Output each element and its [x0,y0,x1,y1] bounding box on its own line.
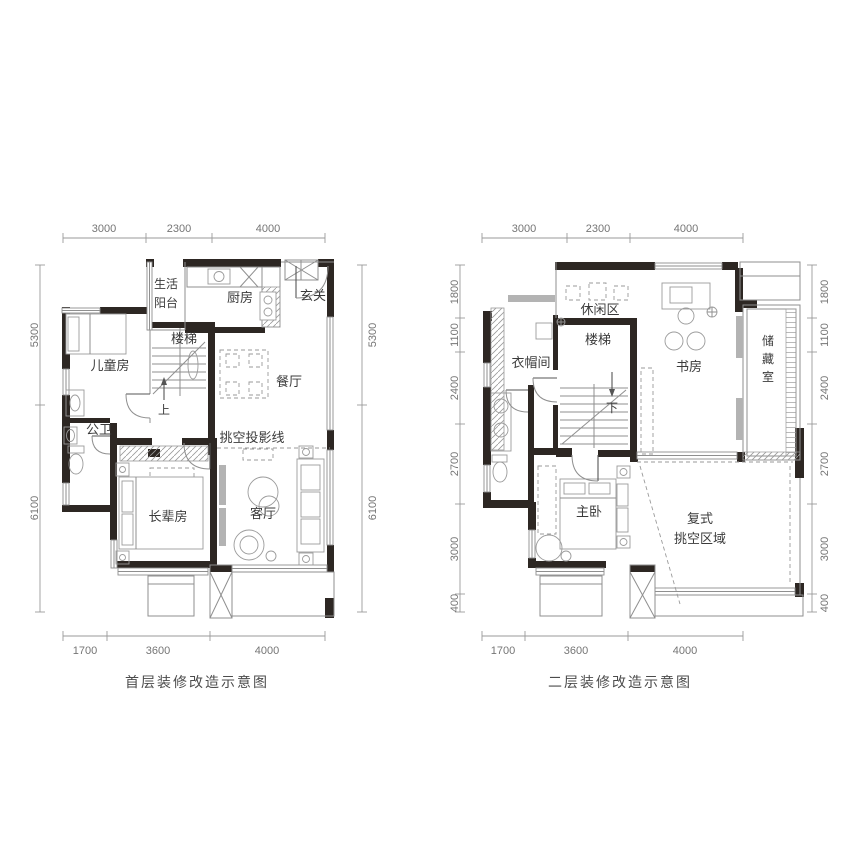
column-x-box [210,565,232,618]
dim-label: 6100 [29,496,41,520]
label-void-1: 复式 [687,511,713,526]
dim-label: 3000 [512,223,536,235]
bed [66,314,126,354]
stool [536,323,552,339]
floor1-walls [62,259,334,618]
sliding-panel [219,508,226,546]
leisure-stools [566,283,628,300]
label-dining: 餐厅 [276,374,302,389]
cloakroom-furniture [536,318,565,339]
dim-label: 3000 [92,223,116,235]
dining-table [220,350,268,398]
label-stairs2: 楼梯 [585,332,611,347]
floor2-dim-right: 1800 1100 2400 2700 3000 400 [807,265,831,612]
floor1-dim-left: 5300 6100 [29,265,45,612]
sliding-panel [219,465,226,505]
dim-label: 5300 [367,323,379,347]
label-void-projection: 挑空投影线 [219,430,284,445]
dim-label: 5300 [29,323,41,347]
label-kids-room: 儿童房 [90,358,129,373]
dim-label: 1800 [819,280,831,304]
dim-label: 4000 [255,645,279,657]
dim-label: 3000 [819,537,831,561]
bath-door-arc [92,436,110,454]
label-leisure: 休闲区 [580,302,619,317]
label-elder-room: 长辈房 [148,509,187,524]
armchair [234,530,264,560]
label-void-2: 挑空区域 [674,531,726,546]
column-x-box2 [630,565,655,618]
tv-cabinet [243,449,273,460]
dim-label: 2700 [449,452,461,476]
label-kitchen: 厨房 [227,290,253,305]
dim-label: 2400 [449,376,461,400]
living-balcony [232,572,334,616]
toilet [69,454,83,474]
storage-window [736,398,743,440]
dim-label: 4000 [673,645,697,657]
toilet-tank [492,455,507,462]
dim-label: 1100 [449,323,461,347]
label-study: 书房 [676,359,702,374]
closet [538,466,556,534]
master-bay-window [540,576,602,616]
dim-label: 400 [819,594,831,612]
floorplan-canvas: 3000 2300 4000 5300 6100 5300 6100 17 [0,0,850,850]
cloakroom-wardrobe [491,308,504,450]
cloak-door-arc [533,378,557,402]
label-living-room: 客厅 [250,506,276,521]
floor1-caption: 首层装修改造示意图 [125,674,269,690]
floor1-plan: 3000 2300 4000 5300 6100 5300 6100 17 [29,223,379,690]
stairs-up-label: 上 [158,403,170,417]
side-table [266,551,276,561]
floor2-plan: 3000 2300 4000 1800 1100 2400 2700 3000 … [449,223,831,690]
label-bathroom: 公卫 [86,422,112,437]
label-storage-3: 室 [762,369,774,384]
kids-door-arc [126,394,150,418]
floor1-dim-right: 5300 6100 [357,265,379,612]
dim-label: 1800 [449,280,461,304]
label-stairs: 楼梯 [171,331,197,346]
floorplan-page: 3000 2300 4000 5300 6100 5300 6100 17 [0,0,850,850]
label-storage-1: 储 [762,333,774,348]
floor2-stairs: 下 [560,372,628,448]
dim-label: 2300 [167,223,191,235]
floor1-dim-top: 3000 2300 4000 [63,223,325,243]
dim-label: 6100 [367,496,379,520]
dim-label: 3000 [449,537,461,561]
nightstand [617,466,630,478]
wardrobe [120,446,208,461]
floor2-dim-bottom: 1700 3600 4000 [482,631,743,657]
dim-label: 2700 [819,452,831,476]
stairs-down-label: 下 [606,401,618,415]
dim-label: 4000 [256,223,280,235]
nightstand [617,536,630,548]
bay-window-elder [148,576,194,616]
storage-window [736,316,743,358]
toilet [493,462,507,482]
floor1-dim-bottom: 1700 3600 4000 [63,631,325,657]
dim-label: 400 [449,594,461,612]
floor2-dim-top: 3000 2300 4000 [482,223,743,243]
bookshelf [641,368,653,454]
label-balcony: 生活 [154,277,178,291]
entry-closet [285,260,318,280]
dim-label: 1700 [73,645,97,657]
floor2-dim-left: 1800 1100 2400 2700 3000 400 [449,265,465,612]
desk-chair [678,308,694,324]
dim-label: 1700 [491,645,515,657]
dining-set [220,350,268,398]
dim-label: 3600 [146,645,170,657]
label-storage-2: 藏 [762,352,774,366]
chair [536,535,562,561]
master-door-arc [572,455,598,481]
dim-label: 3600 [564,645,588,657]
label-cloakroom: 衣帽间 [511,355,550,370]
toilet-tank [68,446,84,453]
dim-label: 1100 [819,323,831,347]
dim-label: 2300 [586,223,610,235]
coffee-table [248,477,278,507]
dim-label: 2400 [819,376,831,400]
void-balcony [655,595,803,616]
label-balcony2: 阳台 [154,295,178,310]
floor2-caption: 二层装修改造示意图 [548,674,692,690]
top-bay [740,262,800,300]
nightstand [116,463,129,476]
label-entry: 玄关 [300,288,326,303]
living-room-furniture [234,446,324,565]
label-master: 主卧 [576,504,602,519]
side-table [561,551,571,561]
dim-label: 4000 [674,223,698,235]
